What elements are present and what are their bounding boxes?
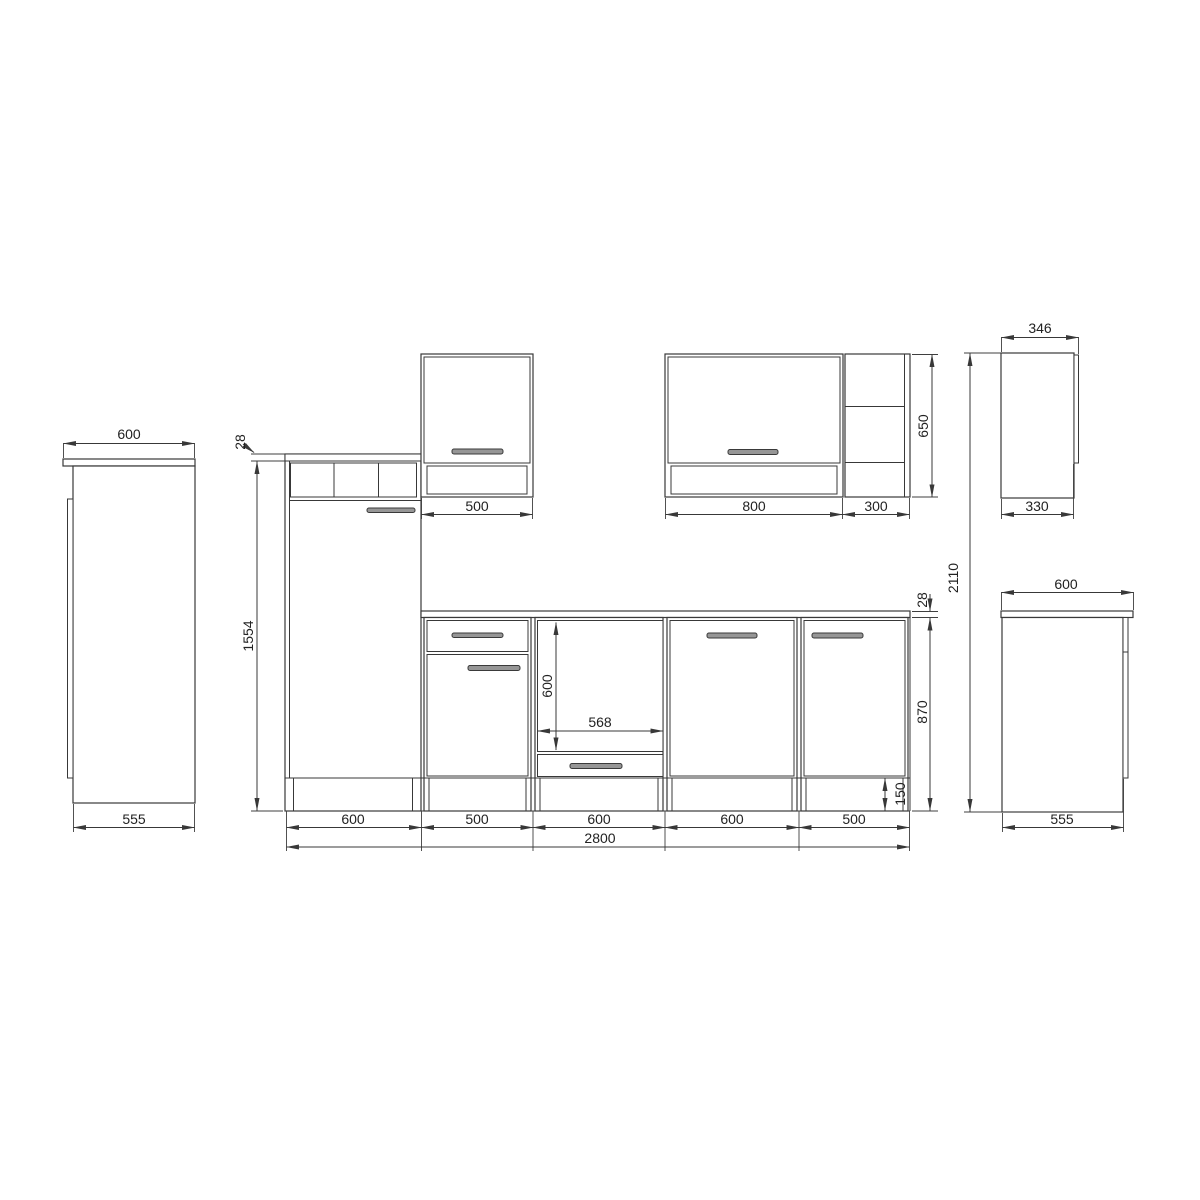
tall-side-top-panel <box>63 459 195 466</box>
wall-800-handle <box>728 450 778 455</box>
dim-label-shelf-300: 300 <box>864 498 888 514</box>
dim-label-wall-side-bottom: 330 <box>1025 498 1049 514</box>
dim-label-base-width-4: 600 <box>720 811 744 827</box>
tall-side-door-panel <box>68 499 74 778</box>
door-handle <box>468 666 520 671</box>
dim-label-tall-height: 1554 <box>240 620 256 651</box>
oven-drawer-handle <box>570 764 622 769</box>
dim-label-tall-side-bottom: 555 <box>122 811 146 827</box>
wall-cabinet-side-view: 346 330 <box>1001 320 1079 519</box>
base-500-door <box>427 655 528 777</box>
dim-label-wall-500: 500 <box>465 498 489 514</box>
tall-side-body <box>73 466 195 803</box>
dim-label-oven-height: 600 <box>539 674 555 698</box>
wall-500-open-shelf <box>427 466 527 494</box>
worktop <box>421 611 910 618</box>
tall-unit-top-panel <box>285 454 421 461</box>
base-side-door-panel <box>1123 618 1128 779</box>
dim-label-tall-side-top: 600 <box>117 426 141 442</box>
dim-label-base-width-5: 500 <box>842 811 866 827</box>
tall-unit-open-shelf-row <box>291 463 417 497</box>
dim-label-wall-side-top: 346 <box>1028 320 1052 336</box>
dim-label-base-height: 870 <box>914 700 930 724</box>
total-height-dimension: 2110 <box>945 353 1001 812</box>
dim-label-wall-height: 650 <box>915 414 931 438</box>
door-handle <box>812 633 863 638</box>
base-side-worktop <box>1001 611 1133 618</box>
door-handle <box>707 633 757 638</box>
drawer-handle <box>452 633 503 638</box>
dim-label-top-panel-28: 28 <box>232 434 248 450</box>
dim-label-total-width: 2800 <box>584 830 615 846</box>
open-shelf-unit-300 <box>845 354 910 497</box>
wall-side-door-panel <box>1074 355 1079 463</box>
extension-lines <box>422 498 910 519</box>
base-cabinet-side-view: 600 555 <box>964 576 1134 832</box>
dim-label-plinth-height: 150 <box>892 782 908 806</box>
dim-label-base-width-2: 500 <box>465 811 489 827</box>
base-500b-door <box>804 621 905 777</box>
wall-500-handle <box>452 449 503 454</box>
extension-lines <box>251 454 285 811</box>
tall-unit-door-handle <box>367 508 415 513</box>
dim-label-worktop-28: 28 <box>914 592 930 608</box>
wall-800-door <box>668 357 840 463</box>
dim-label-base-side-top: 600 <box>1054 576 1078 592</box>
dim-label-base-width-1: 600 <box>341 811 365 827</box>
front-elevation <box>285 354 910 811</box>
technical-drawing-canvas: 600 555 <box>0 0 1200 1200</box>
wall-800-open-shelf <box>671 466 837 494</box>
wall-500-door <box>424 357 530 463</box>
dim-label-total-height: 2110 <box>945 563 961 593</box>
tall-cabinet-side-view: 600 555 <box>63 426 195 832</box>
base-side-body <box>1002 618 1123 813</box>
wall-side-body <box>1001 353 1074 498</box>
dim-label-base-width-3: 600 <box>587 811 611 827</box>
dim-label-base-side-bottom: 555 <box>1050 811 1074 827</box>
dim-label-oven-width: 568 <box>588 714 612 730</box>
base-600-door <box>670 621 794 777</box>
kitchen-dimension-drawing: 600 555 <box>0 0 1200 1200</box>
dim-label-wall-800: 800 <box>742 498 766 514</box>
